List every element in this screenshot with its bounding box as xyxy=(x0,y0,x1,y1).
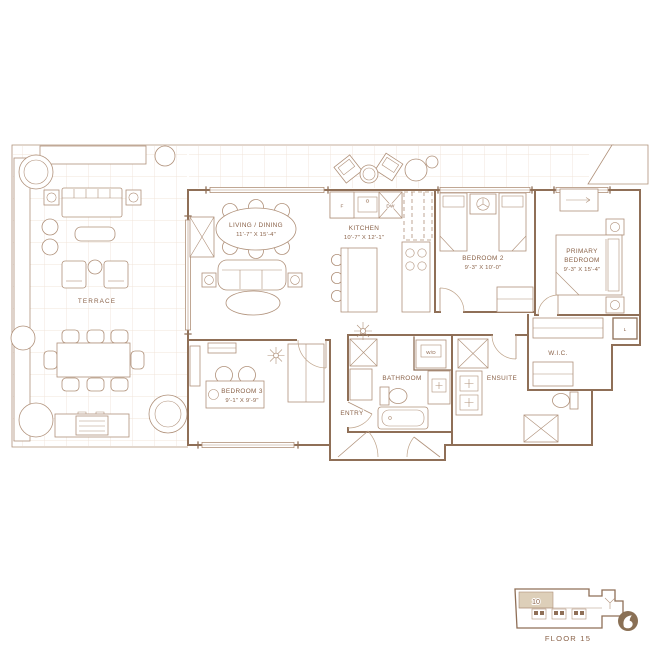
island-counter xyxy=(341,248,377,312)
washer-dryer-label: W/D xyxy=(426,350,436,355)
primary-bedroom-label-1: PRIMARY xyxy=(566,248,598,255)
keyplan-core xyxy=(552,609,566,619)
door-swing-arc xyxy=(440,288,464,312)
primary-bedroom-dims: 9'-3" X 15'-4" xyxy=(564,267,601,273)
pouf xyxy=(42,219,58,235)
duct-lines xyxy=(412,192,424,240)
brand-logo-icon xyxy=(618,611,638,631)
living-dining-label: LIVING / DINING xyxy=(229,222,283,229)
bedroom2-room: BEDROOM 2 9'-3" X 10'-0" xyxy=(440,193,533,312)
bathtub xyxy=(378,407,428,429)
bedroom2-label: BEDROOM 2 xyxy=(462,255,504,262)
tree-icon xyxy=(19,403,53,437)
primary-bedroom-room: PRIMARY BEDROOM 9'-3" X 15'-4" xyxy=(538,189,624,315)
bedroom3-room: BEDROOM 3 9'-1" X 9'-9" xyxy=(190,340,326,408)
outdoor-sofa xyxy=(62,188,122,217)
sofa-set xyxy=(202,260,302,315)
outdoor-chair xyxy=(104,261,128,288)
nightstand xyxy=(606,297,624,313)
nightstand xyxy=(606,219,624,235)
kitchen-island xyxy=(331,248,377,312)
bedroom2-closet xyxy=(497,287,533,312)
side-table xyxy=(288,273,302,287)
ceiling-fan-icon xyxy=(268,347,285,364)
wic-label: W.I.C. xyxy=(548,350,568,357)
terrace-label: TERRACE xyxy=(78,298,116,305)
dining-chair xyxy=(111,330,128,343)
primary-bedroom-label-2: BEDROOM xyxy=(564,257,599,264)
floorplan-page: TERRACE xyxy=(0,0,650,663)
keyplan-unit-number: 10 xyxy=(532,597,540,606)
bedroom3-closet-left xyxy=(190,346,200,386)
double-vanity xyxy=(456,371,482,415)
bedroom2-dims: 9'-3" X 10'-0" xyxy=(465,265,502,271)
bbq-grill-box xyxy=(76,416,108,435)
dining-chair xyxy=(87,378,104,391)
dining-chair xyxy=(87,330,104,343)
bbq-grill xyxy=(55,412,129,437)
keyplan: 10 FLOOR 15 xyxy=(515,589,638,643)
oval-dining-table xyxy=(216,208,296,250)
planter-box xyxy=(126,190,141,205)
dishwasher-label: DW xyxy=(386,204,395,209)
keyplan-floor-label: FLOOR 15 xyxy=(545,634,591,643)
planter-strip-left xyxy=(14,158,30,441)
outdoor-chair xyxy=(62,261,86,288)
range-counter xyxy=(402,242,430,312)
vanity xyxy=(428,371,450,404)
planter-strip-top xyxy=(40,146,146,164)
kitchen-dims: 10'-7" X 12'-1" xyxy=(344,235,384,241)
sofa xyxy=(218,260,286,290)
toilet xyxy=(380,387,407,405)
kitchen-label: KITCHEN xyxy=(349,225,380,232)
upper-balcony xyxy=(188,145,648,188)
bedroom3-dims: 9'-1" X 9'-9" xyxy=(225,398,258,404)
king-bed xyxy=(556,235,622,295)
bedroom3-label: BEDROOM 3 xyxy=(221,388,263,395)
entry-label: ENTRY xyxy=(340,410,364,417)
entry-door xyxy=(338,431,440,457)
dining-chair xyxy=(111,378,128,391)
linen-closet: L xyxy=(613,318,637,339)
keyplan-core xyxy=(572,609,586,619)
linen-shelves xyxy=(350,369,372,400)
keyplan-core xyxy=(532,609,546,619)
ottoman xyxy=(226,291,280,315)
side-table xyxy=(202,273,216,287)
side-table xyxy=(88,260,102,274)
bathroom-label: BATHROOM xyxy=(382,375,421,382)
dining-table-set xyxy=(216,200,296,259)
twin-bed xyxy=(440,193,467,251)
coffee-table xyxy=(75,227,115,241)
ceiling-fixture-icon xyxy=(354,322,372,340)
terrace-area: TERRACE xyxy=(11,145,188,447)
tree-icon xyxy=(11,326,35,350)
door-swing-arc xyxy=(492,335,516,359)
dining-chair xyxy=(62,378,79,391)
wic-closet-room: W.I.C. xyxy=(533,318,603,386)
keyplan-detail xyxy=(605,598,615,609)
pouf xyxy=(42,239,58,255)
shrub-icon xyxy=(155,146,175,166)
toilet xyxy=(553,392,579,409)
planter-box xyxy=(44,190,59,205)
shrub-icon xyxy=(426,156,438,168)
living-dining-room: LIVING / DINING 11'-7" X 15'-4" xyxy=(190,200,302,316)
dining-chair xyxy=(44,351,57,369)
twin-bed xyxy=(499,193,526,251)
living-dining-dims: 11'-7" X 15'-4" xyxy=(236,232,276,238)
dining-chair xyxy=(131,351,144,369)
duct-shaft xyxy=(404,192,432,240)
outdoor-dining-table xyxy=(57,343,130,377)
door-swing-arc xyxy=(538,295,558,315)
shrub-icon xyxy=(405,159,427,181)
dining-chair xyxy=(62,330,79,343)
kitchen-room: F DW KITCHEN 10'-7" X 12'-1" xyxy=(330,192,430,312)
linen-label: L xyxy=(624,327,627,332)
floorplan-canvas: TERRACE xyxy=(0,0,650,663)
ensuite-label: ENSUITE xyxy=(487,375,517,382)
washer-dryer-closet: W/D xyxy=(416,340,446,368)
fridge-label: F xyxy=(340,204,343,209)
glazing-band xyxy=(588,145,648,184)
